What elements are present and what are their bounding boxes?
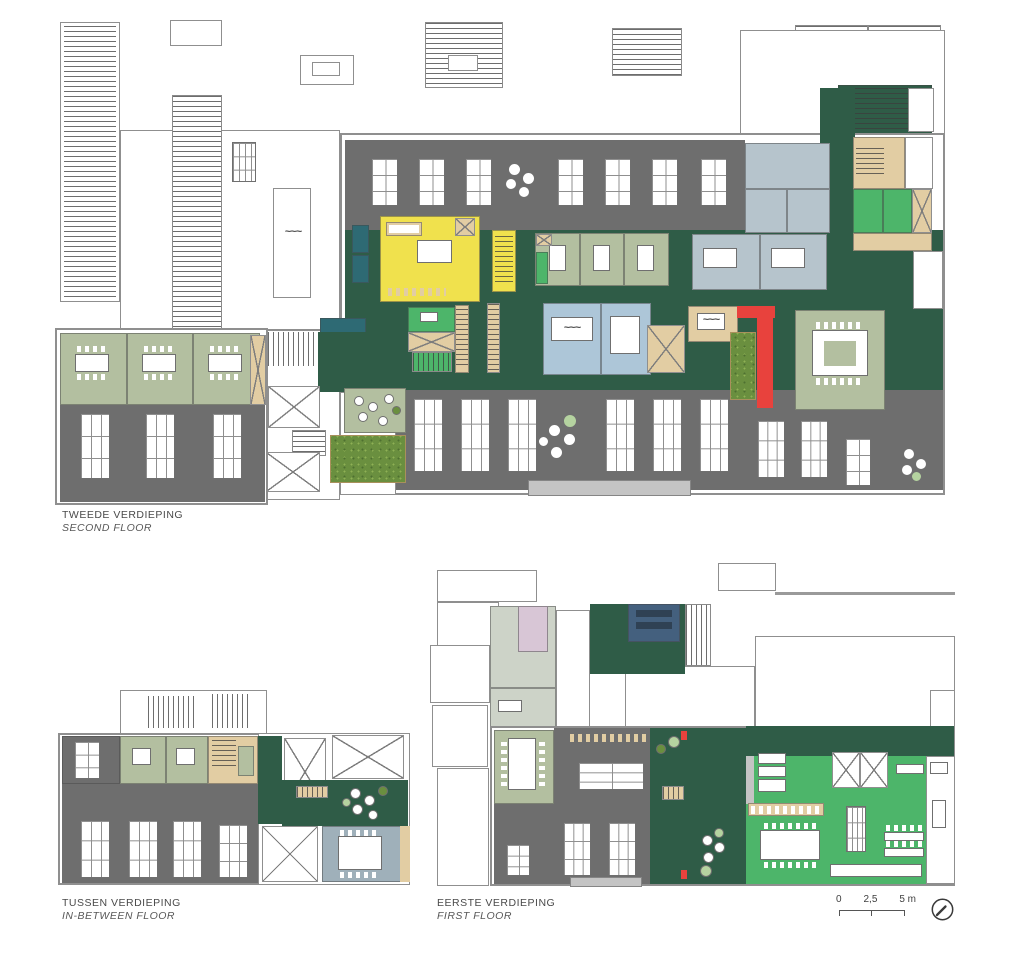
chair-column xyxy=(501,742,507,786)
table xyxy=(884,848,924,857)
desk-group xyxy=(563,822,591,876)
chair-column xyxy=(539,742,545,786)
table xyxy=(758,779,786,792)
chair-row xyxy=(886,841,922,847)
caption-title: EERSTE VERDIEPING xyxy=(437,897,555,910)
room-zone xyxy=(518,606,548,652)
desk-group xyxy=(608,822,636,876)
table xyxy=(896,764,924,774)
north-arrow-icon xyxy=(929,896,956,923)
scale-tick-label: 5 m xyxy=(899,894,916,906)
desk-group xyxy=(846,806,866,852)
table xyxy=(758,766,786,777)
room-outline xyxy=(556,610,590,730)
caption-subtitle: IN-BETWEEN FLOOR xyxy=(62,910,181,923)
chair xyxy=(703,852,714,863)
table xyxy=(932,800,946,828)
table xyxy=(498,700,522,712)
elevator-shaft xyxy=(832,752,860,788)
chair xyxy=(714,842,725,853)
caption-subtitle: SECOND FLOOR xyxy=(62,522,183,535)
room-outline xyxy=(432,705,488,767)
chair xyxy=(702,835,713,846)
chair xyxy=(714,828,724,838)
room-outline xyxy=(625,666,755,728)
chair-row xyxy=(764,862,816,868)
chair xyxy=(700,865,712,877)
room-zone xyxy=(570,877,642,887)
table xyxy=(930,762,948,774)
table xyxy=(760,830,820,860)
caption-second-floor: TWEEDE VERDIEPING SECOND FLOOR xyxy=(62,509,183,535)
scale-bar-labels: 0 2,5 5 m xyxy=(836,894,916,906)
chair-row xyxy=(886,825,922,831)
chair-row xyxy=(764,823,816,829)
desk-group xyxy=(578,762,644,790)
scale-bar: 0 2,5 5 m xyxy=(836,894,916,916)
caption-subtitle: FIRST FLOOR xyxy=(437,910,555,923)
plan-first-floor xyxy=(0,0,1018,965)
table xyxy=(508,738,536,790)
chair-row xyxy=(570,734,646,742)
room-outline xyxy=(437,768,489,886)
caption-title: TWEEDE VERDIEPING xyxy=(62,509,183,522)
room-zone xyxy=(681,870,687,879)
caption-title: TUSSEN VERDIEPING xyxy=(62,897,181,910)
stairs xyxy=(662,786,684,800)
desk-group xyxy=(506,844,530,876)
room-zone xyxy=(636,610,672,617)
room-outline xyxy=(437,570,537,602)
caption-first-floor: EERSTE VERDIEPING FIRST FLOOR xyxy=(437,897,555,923)
room-outline xyxy=(718,563,776,591)
caption-in-between-floor: TUSSEN VERDIEPING IN-BETWEEN FLOOR xyxy=(62,897,181,923)
scale-tick-label: 2,5 xyxy=(863,894,877,906)
elevator-shaft xyxy=(860,752,888,788)
scale-bar-line xyxy=(839,910,905,916)
room-zone xyxy=(775,592,955,595)
scale-tick-label: 0 xyxy=(836,894,842,906)
room-zone xyxy=(636,622,672,629)
room-outline xyxy=(430,645,490,703)
table xyxy=(830,864,922,877)
stairs xyxy=(685,604,711,666)
table xyxy=(758,753,786,764)
floor-plan-sheet: ~~~~~~~~~ TWEEDE VERDIEPING SECOND FLOOR… xyxy=(0,0,1018,965)
chair-row xyxy=(751,806,821,814)
room-zone xyxy=(681,731,687,740)
chair xyxy=(656,744,666,754)
chair xyxy=(668,736,680,748)
room-zone xyxy=(746,756,754,804)
table xyxy=(884,832,924,841)
room-outline xyxy=(755,636,955,735)
